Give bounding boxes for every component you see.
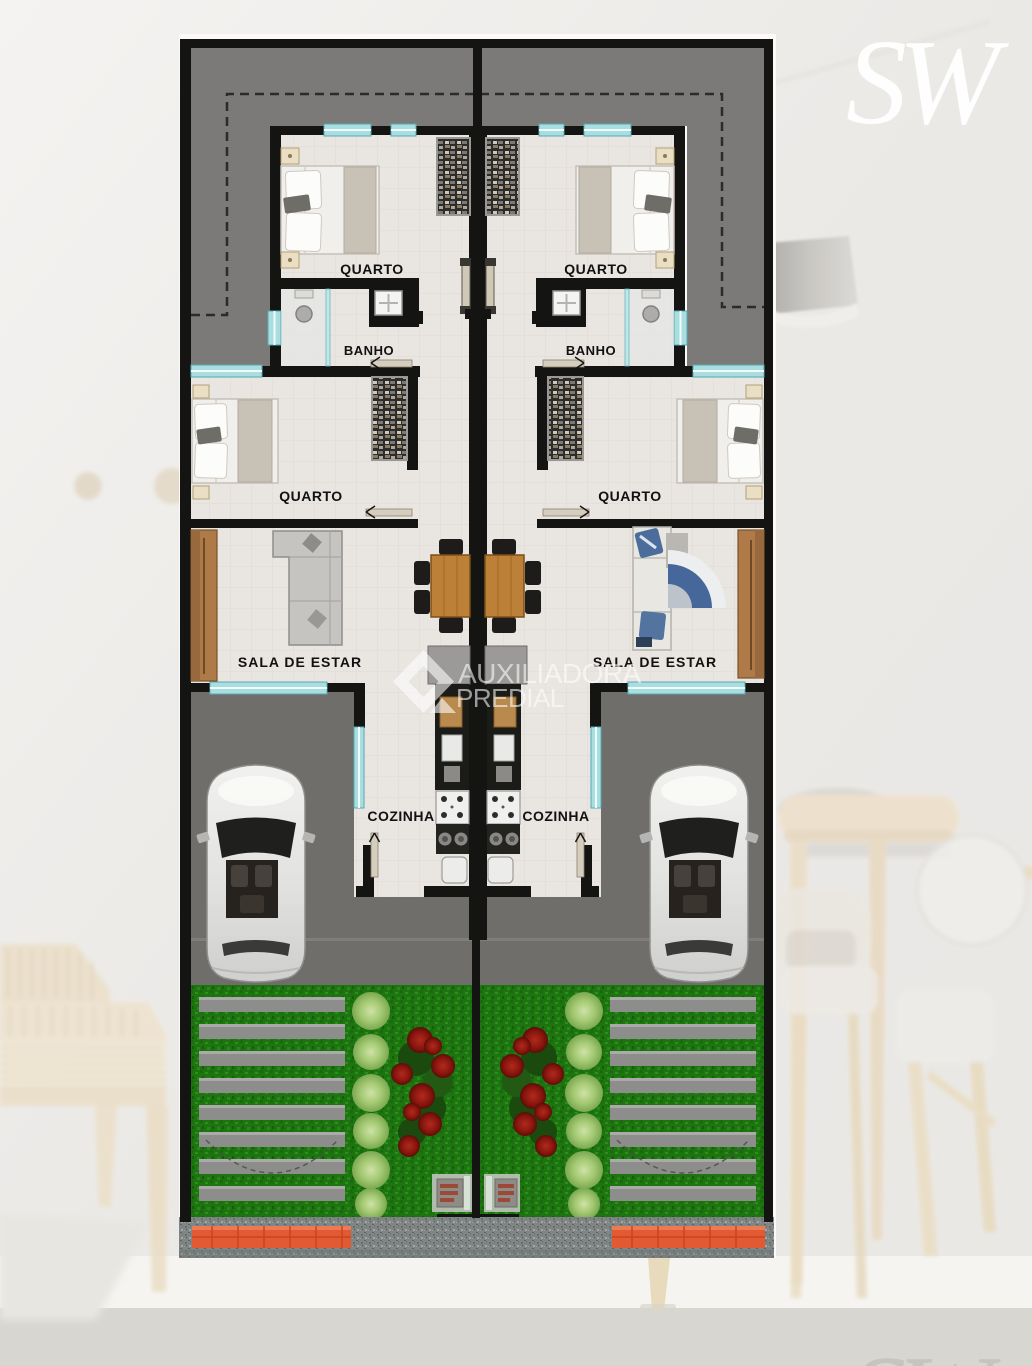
svg-text:PREDIAL: PREDIAL xyxy=(456,683,564,713)
svg-text:QUARTO: QUARTO xyxy=(340,261,403,277)
svg-text:SW: SW xyxy=(850,1334,1001,1366)
svg-text:SW: SW xyxy=(846,15,1009,150)
svg-text:SALA DE ESTAR: SALA DE ESTAR xyxy=(238,654,362,670)
svg-text:COZINHA: COZINHA xyxy=(522,808,589,824)
svg-text:QUARTO: QUARTO xyxy=(598,488,661,504)
svg-text:QUARTO: QUARTO xyxy=(564,261,627,277)
svg-text:QUARTO: QUARTO xyxy=(279,488,342,504)
svg-text:BANHO: BANHO xyxy=(566,343,616,358)
svg-text:BANHO: BANHO xyxy=(344,343,394,358)
svg-text:COZINHA: COZINHA xyxy=(367,808,434,824)
